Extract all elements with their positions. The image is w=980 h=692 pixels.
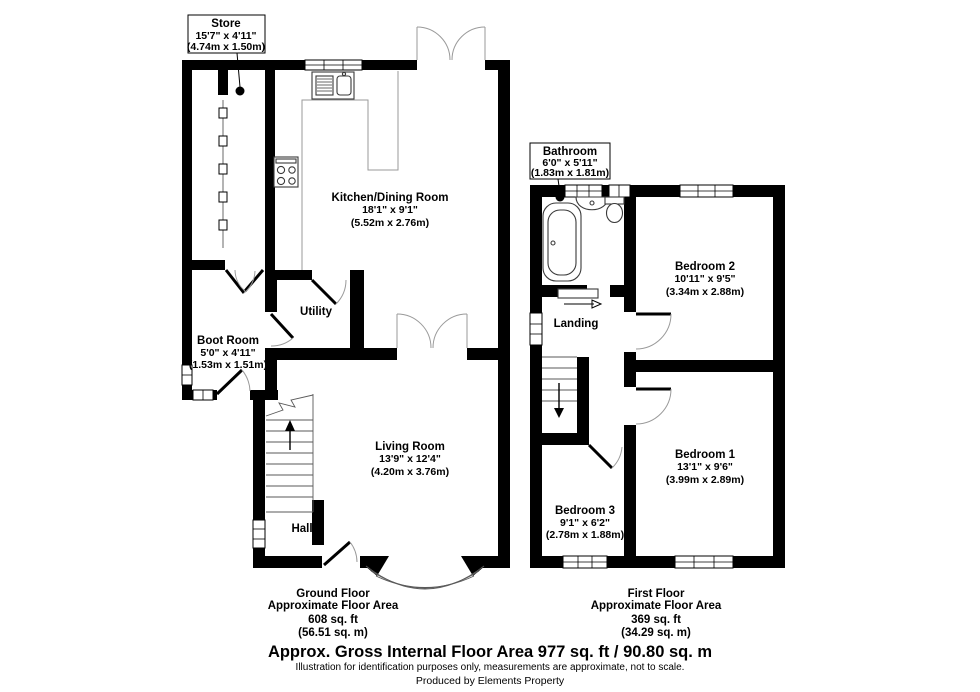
- bedroom2-door: [636, 314, 671, 349]
- ground-floor-plan: Store 15'7" x 4'11" (4.74m x 1.50m) Kitc…: [182, 15, 510, 639]
- french-doors: [417, 27, 485, 60]
- footer: Approx. Gross Internal Floor Area 977 sq…: [268, 643, 712, 687]
- kitchen-metric: (5.52m x 2.76m): [351, 217, 429, 229]
- kitchen-counter: [302, 71, 398, 270]
- boot-room-exterior-door: [217, 370, 250, 394]
- bedroom3-metric: (2.78m x 1.88m): [546, 529, 624, 541]
- ground-floor-walls: [182, 60, 510, 576]
- bathroom-metric: (1.83m x 1.81m): [531, 167, 609, 179]
- bedroom1-door: [636, 389, 671, 424]
- bedroom3-dims: 9'1" x 6'2": [560, 517, 610, 529]
- bathroom-sliding-door: [558, 289, 601, 308]
- first-floor-area-m: (34.29 sq. m): [621, 627, 691, 639]
- bedroom2-dims: 10'11" x 9'5": [674, 273, 735, 285]
- kitchen-dims: 18'1" x 9'1": [362, 204, 418, 216]
- kitchen-living-double-doors: [397, 314, 467, 348]
- ground-floor-labels: Kitchen/Dining Room 18'1" x 9'1" (5.52m …: [189, 192, 449, 535]
- store-partition: [219, 100, 227, 248]
- first-floor-title: First Floor: [628, 588, 685, 600]
- first-floor-summary: First Floor Approximate Floor Area 369 s…: [591, 588, 722, 639]
- first-floor-subtitle: Approximate Floor Area: [591, 600, 722, 612]
- ground-floor-subtitle: Approximate Floor Area: [268, 600, 399, 612]
- kitchen-sink-unit: [312, 72, 354, 99]
- boot-room-metric: (1.53m x 1.51m): [189, 359, 267, 371]
- bathtub: [543, 203, 581, 281]
- first-floor-plan: Bathroom 6'0" x 5'11" (1.83m x 1.81m) La…: [530, 143, 785, 639]
- toilet: [605, 197, 624, 223]
- front-door: [324, 542, 357, 565]
- bedroom1-label: Bedroom 1: [675, 449, 736, 461]
- hob: [274, 157, 298, 187]
- bedroom3-label: Bedroom 3: [555, 505, 615, 517]
- ground-floor-area-ft: 608 sq. ft: [308, 614, 358, 626]
- bedroom2-label: Bedroom 2: [675, 261, 735, 273]
- boot-room-dims: 5'0" x 4'11": [200, 347, 255, 359]
- disclaimer-text: Illustration for identification purposes…: [296, 662, 685, 673]
- credit-text: Produced by Elements Property: [416, 675, 565, 687]
- stairs-up: [266, 394, 313, 512]
- living-room-metric: (4.20m x 3.76m): [371, 466, 449, 478]
- bay-window: [366, 566, 484, 589]
- living-room-dims: 13'9" x 12'4": [379, 453, 441, 465]
- floorplan-drawing: Store 15'7" x 4'11" (4.74m x 1.50m) Kitc…: [0, 0, 980, 692]
- bedroom1-metric: (3.99m x 2.89m): [666, 474, 744, 486]
- utility-boot-door: [271, 314, 293, 346]
- store-callout-dot: [236, 87, 245, 96]
- gross-area-text: Approx. Gross Internal Floor Area 977 sq…: [268, 643, 712, 661]
- ground-floor-title: Ground Floor: [296, 588, 370, 600]
- ground-floor-summary: Ground Floor Approximate Floor Area 608 …: [268, 588, 399, 639]
- first-floor-area-ft: 369 sq. ft: [631, 614, 681, 626]
- bedroom1-dims: 13'1" x 9'6": [677, 461, 733, 473]
- store-boot-double-doors: [226, 270, 263, 293]
- utility-door: [312, 280, 346, 304]
- landing-label: Landing: [554, 318, 599, 330]
- stairs-down: [542, 357, 577, 418]
- utility-label: Utility: [300, 306, 333, 318]
- kitchen-label: Kitchen/Dining Room: [332, 192, 449, 204]
- hall-label: Hall: [291, 523, 312, 535]
- bedroom2-metric: (3.34m x 2.88m): [666, 286, 744, 298]
- store-metric: (4.74m x 1.50m): [187, 41, 265, 53]
- ground-floor-area-m: (56.51 sq. m): [298, 627, 368, 639]
- basin: [576, 197, 608, 210]
- bathroom-callout-dot: [556, 193, 565, 202]
- boot-room-label: Boot Room: [197, 335, 259, 347]
- floorplan-page: Store 15'7" x 4'11" (4.74m x 1.50m) Kitc…: [0, 0, 980, 692]
- bedroom3-door: [589, 445, 622, 468]
- store-label: Store: [211, 18, 240, 30]
- living-room-label: Living Room: [375, 441, 445, 453]
